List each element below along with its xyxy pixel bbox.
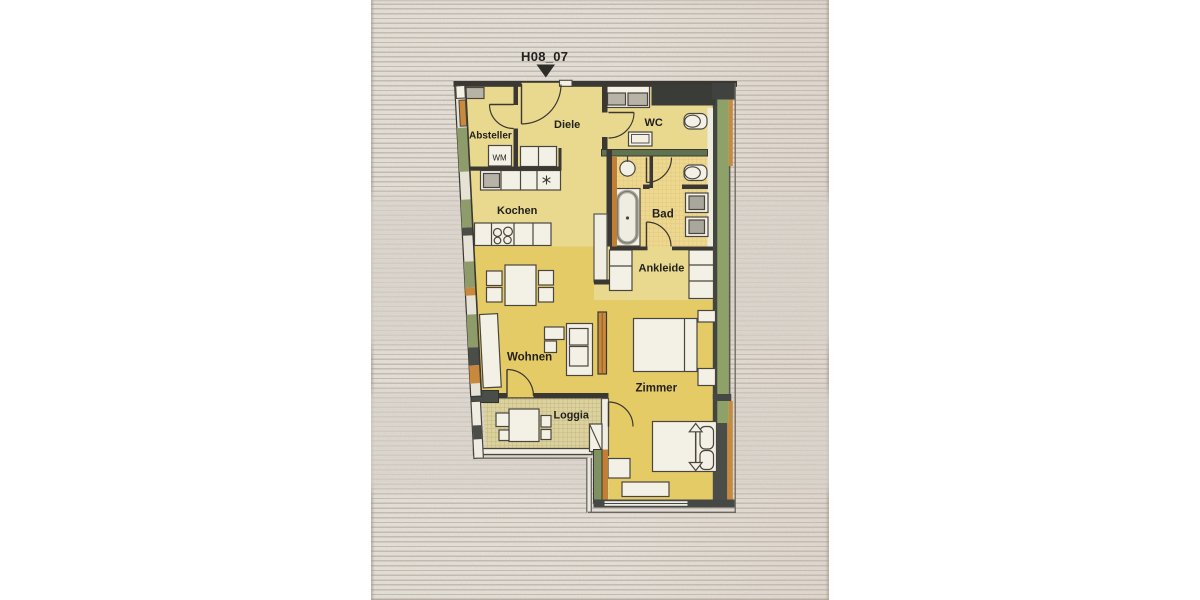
svg-text:Absteller: Absteller xyxy=(469,131,512,142)
svg-text:Loggia: Loggia xyxy=(554,410,590,422)
svg-text:WC: WC xyxy=(645,117,663,129)
svg-text:Zimmer: Zimmer xyxy=(636,383,678,395)
svg-text:Kochen: Kochen xyxy=(497,205,538,217)
svg-text:Ankleide: Ankleide xyxy=(639,263,685,275)
svg-text:Bad: Bad xyxy=(652,209,674,221)
svg-text:Wohnen: Wohnen xyxy=(507,352,552,364)
svg-text:Diele: Diele xyxy=(554,119,580,131)
svg-text:H08_07: H08_07 xyxy=(521,49,568,64)
svg-text:WM: WM xyxy=(493,154,508,163)
